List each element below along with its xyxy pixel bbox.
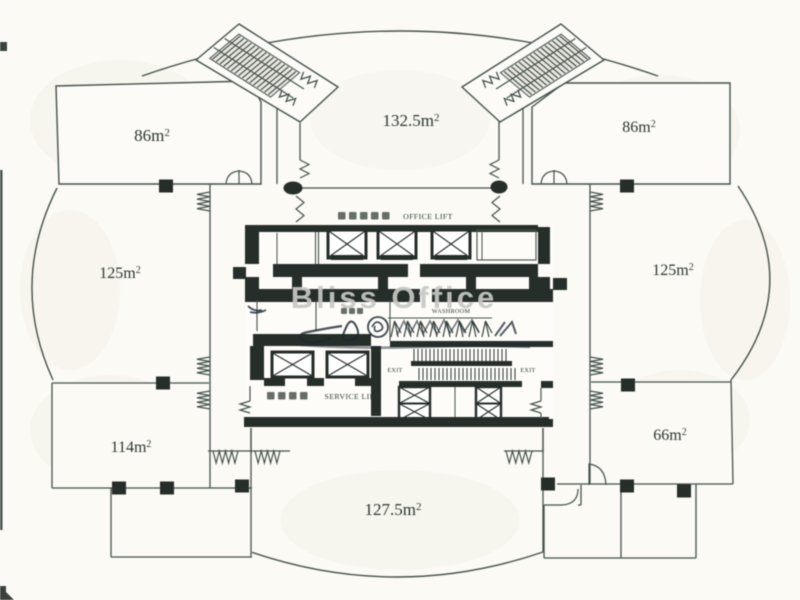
svg-text:86m2: 86m2 xyxy=(622,119,655,136)
svg-text:125m2: 125m2 xyxy=(99,265,140,282)
svg-text:66m2: 66m2 xyxy=(653,427,686,444)
svg-text:132.5m2: 132.5m2 xyxy=(383,111,440,130)
svg-text:125m2: 125m2 xyxy=(652,262,693,279)
svg-text:SERVICE LIFT: SERVICE LIFT xyxy=(324,392,379,401)
svg-text:OFFICE LIFT: OFFICE LIFT xyxy=(403,212,453,221)
svg-text:EXIT: EXIT xyxy=(520,367,535,374)
svg-text:EXIT: EXIT xyxy=(387,367,402,374)
svg-text:127.5m2: 127.5m2 xyxy=(365,500,422,519)
svg-text:Bliss Office: Bliss Office xyxy=(291,280,498,315)
svg-text:114m2: 114m2 xyxy=(111,439,152,456)
